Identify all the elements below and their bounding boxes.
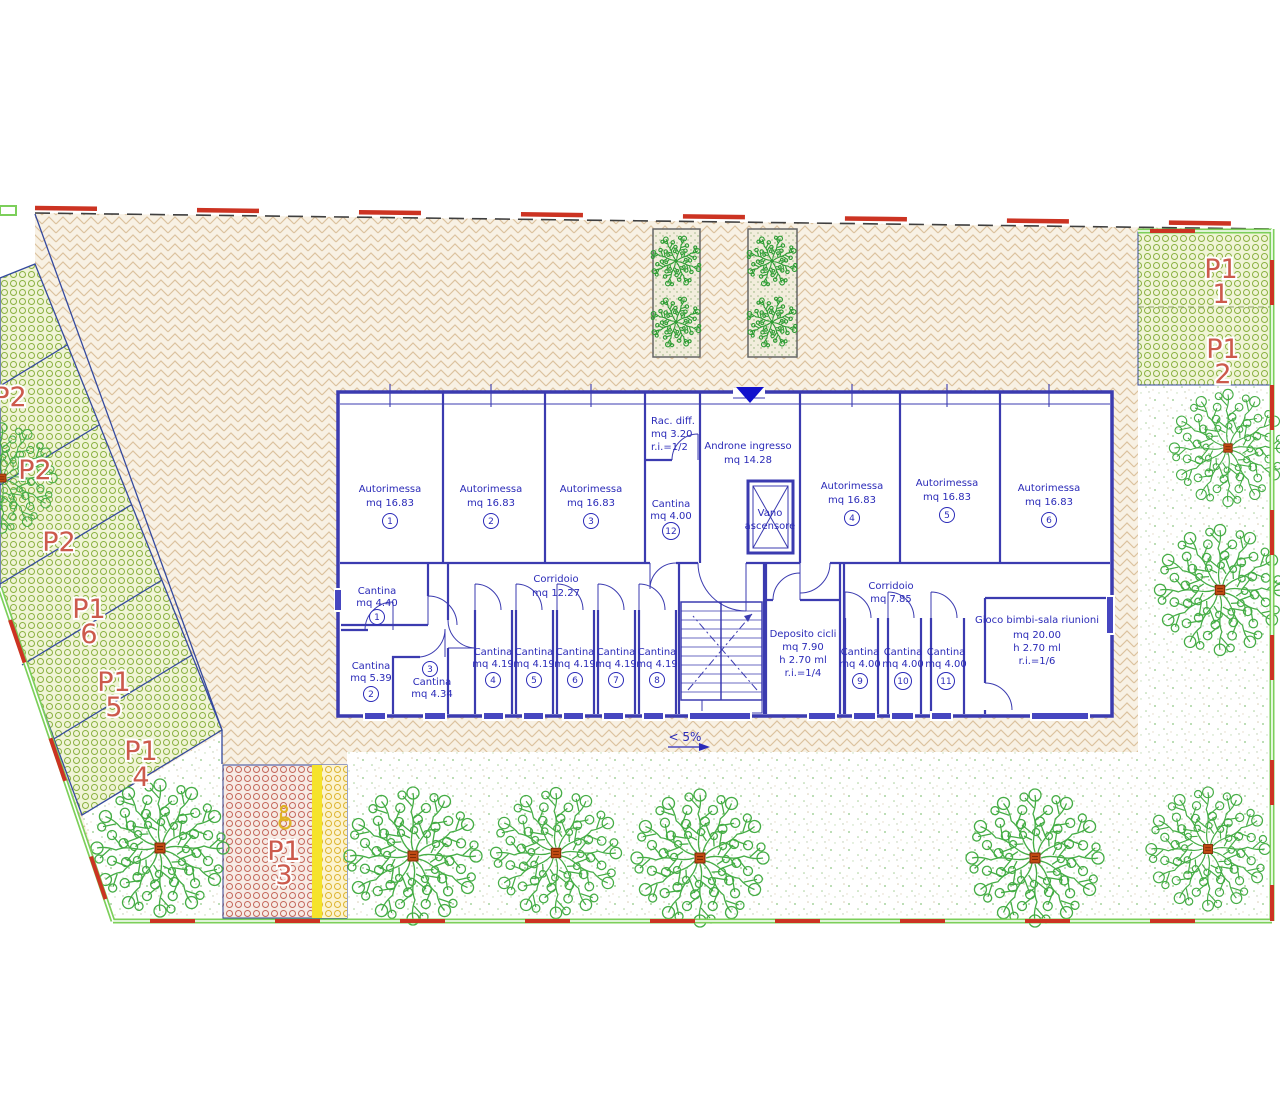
room-number-c11: 11 — [940, 677, 951, 687]
room-label-deposito-name: Deposito cicli — [770, 629, 837, 640]
room-label-cantina-7-name: Cantina — [597, 647, 636, 658]
parking-number-left-6: 4 — [132, 762, 149, 793]
floor-plan-canvas: Autorimessa mq 16.83 1 Autorimessa mq 16… — [0, 0, 1280, 1111]
room-label-cantina-4-name: Cantina — [474, 647, 513, 658]
room-label-gioco-name: Gioco bimbi-sala riunioni — [975, 615, 1099, 626]
room-number-5: 5 — [944, 511, 950, 521]
building — [334, 384, 1115, 721]
room-number-c10: 10 — [897, 677, 909, 687]
room-label-cantina-10-area: mq 4.00 — [882, 659, 924, 670]
room-label-autorimessa-2-name: Autorimessa — [460, 484, 523, 495]
parking-number-right-2: 2 — [1214, 359, 1231, 390]
room-label-autorimessa-3-name: Autorimessa — [560, 484, 623, 495]
room-number-c4: 4 — [490, 676, 496, 686]
room-label-vano-line2: ascensore — [745, 521, 796, 532]
room-number-2: 2 — [488, 517, 494, 527]
room-label-vano-line1: Vano — [758, 508, 783, 519]
room-label-gioco-ri: r.i.=1/6 — [1019, 656, 1056, 667]
room-label-cantina-2-name: Cantina — [352, 661, 391, 672]
parking-label-left-3: P2 — [42, 527, 75, 558]
room-label-deposito-h: h 2.70 ml — [779, 655, 826, 666]
room-label-cantina-4-area: mq 4.19 — [472, 659, 514, 670]
room-number-c9: 9 — [857, 677, 863, 687]
room-label-androne-area: mq 14.28 — [724, 455, 772, 466]
room-label-corridoio-right-area: mq 7.85 — [870, 594, 912, 605]
parking-number-left-5: 5 — [105, 692, 122, 723]
room-label-gioco-h: h 2.70 ml — [1013, 643, 1060, 654]
room-label-cantina-3-area: mq 4.34 — [411, 689, 453, 700]
room-label-corridoio-left-name: Corridoio — [533, 574, 578, 585]
room-number-c8: 8 — [654, 676, 660, 686]
room-label-autorimessa-4-area: mq 16.83 — [828, 495, 876, 506]
room-label-autorimessa-5-area: mq 16.83 — [923, 492, 971, 503]
room-number-6: 6 — [1046, 516, 1052, 526]
room-label-cantina-5-area: mq 4.19 — [513, 659, 555, 670]
room-label-cantina-12-area: mq 4.00 — [650, 511, 692, 522]
room-label-autorimessa-1-name: Autorimessa — [359, 484, 422, 495]
room-label-cantina-5-name: Cantina — [515, 647, 554, 658]
room-label-rac-diff-area: mq 3.20 — [651, 429, 693, 440]
room-number-c2: 2 — [368, 690, 374, 700]
room-number-c7: 7 — [613, 676, 619, 686]
room-label-corridoio-right-name: Corridoio — [868, 581, 913, 592]
parking-label-left-1: P2 — [0, 382, 27, 413]
room-number-4: 4 — [849, 514, 855, 524]
room-label-autorimessa-5-name: Autorimessa — [916, 478, 979, 489]
room-label-rac-diff-ri: r.i.=1/2 — [651, 442, 688, 453]
parking-label-left-2: P2 — [18, 455, 51, 486]
room-number-c3: 3 — [427, 665, 433, 675]
slope-label: < 5% — [669, 730, 702, 744]
room-label-cantina-8-name: Cantina — [638, 647, 677, 658]
room-label-deposito-area: mq 7.90 — [782, 642, 824, 653]
room-label-cantina-8-area: mq 4.19 — [636, 659, 678, 670]
room-label-cantina-11-area: mq 4.00 — [925, 659, 967, 670]
room-label-cantina-7-area: mq 4.19 — [595, 659, 637, 670]
room-number-c1: 1 — [374, 613, 380, 623]
room-label-autorimessa-6-name: Autorimessa — [1018, 483, 1081, 494]
room-label-cantina-9-name: Cantina — [841, 647, 880, 658]
site-plan-drawing: Autorimessa mq 16.83 1 Autorimessa mq 16… — [0, 0, 1280, 1111]
parking-number-disabled: 3 — [275, 860, 292, 891]
room-label-cantina-2-area: mq 5.39 — [350, 673, 392, 684]
room-label-deposito-ri: r.i.=1/4 — [785, 668, 822, 679]
room-label-autorimessa-3-area: mq 16.83 — [567, 498, 615, 509]
parking-number-right-1: 1 — [1212, 279, 1229, 310]
room-label-gioco-area: mq 20.00 — [1013, 630, 1061, 641]
room-label-rac-diff-name: Rac. diff. — [651, 416, 695, 427]
room-label-autorimessa-2-area: mq 16.83 — [467, 498, 515, 509]
room-number-c6: 6 — [572, 676, 578, 686]
room-label-cantina-1-area: mq 4.40 — [356, 598, 398, 609]
room-label-cantina-1-name: Cantina — [358, 586, 397, 597]
room-label-cantina-10-name: Cantina — [884, 647, 923, 658]
room-label-autorimessa-6-area: mq 16.83 — [1025, 497, 1073, 508]
parking-number-left-4: 6 — [80, 619, 97, 650]
room-number-c5: 5 — [531, 676, 537, 686]
room-label-cantina-3-name: Cantina — [413, 677, 452, 688]
room-number-12: 12 — [665, 527, 676, 537]
room-number-3: 3 — [588, 517, 594, 527]
room-label-cantina-9-area: mq 4.00 — [839, 659, 881, 670]
room-number-1: 1 — [387, 517, 393, 527]
room-label-cantina-6-area: mq 4.19 — [554, 659, 596, 670]
room-label-autorimessa-1-area: mq 16.83 — [366, 498, 414, 509]
room-label-cantina-12-name: Cantina — [652, 499, 691, 510]
room-label-corridoio-left-area: mq 12.27 — [532, 588, 580, 599]
room-label-autorimessa-4-name: Autorimessa — [821, 481, 884, 492]
room-label-cantina-11-name: Cantina — [927, 647, 966, 658]
room-label-cantina-6-name: Cantina — [556, 647, 595, 658]
room-label-androne-name: Androne ingresso — [704, 441, 791, 452]
